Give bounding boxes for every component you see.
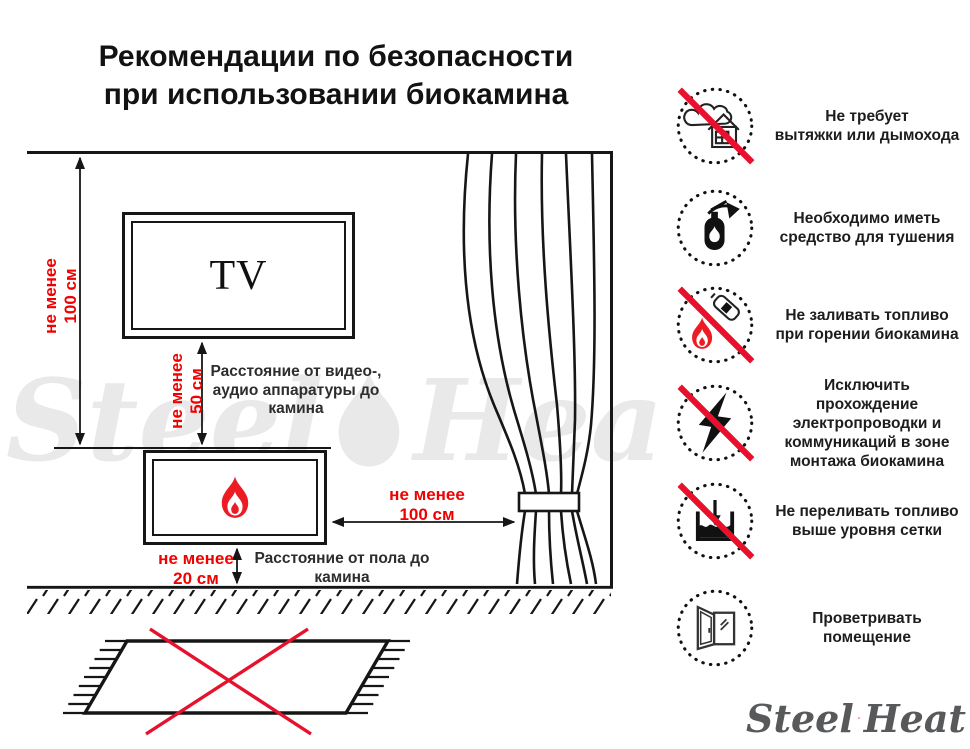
measure-value: 50 см: [187, 336, 207, 446]
caption-line: камина: [210, 400, 382, 419]
no-wiring-icon: [658, 381, 772, 465]
measure-text: не менее: [146, 549, 246, 569]
page-title-line1: Рекомендации по безопасности: [26, 38, 646, 76]
measure-value: 100 см: [352, 505, 502, 525]
floor-hatching: [27, 590, 611, 614]
biofireplace-firebox: [152, 459, 318, 536]
logo-flame-icon: [858, 695, 860, 741]
page-title-line2: при использовании биокамина: [26, 76, 646, 114]
logo-word-steel: Steel: [746, 696, 854, 741]
recommendation-row: Необходимо иметь средство для тушения: [658, 178, 964, 278]
recommendation-text: Не заливать топливо при горении биокамин…: [772, 306, 964, 344]
recommendation-row: Проветривать помещение: [658, 578, 964, 678]
measure-ceiling-to-fireplace: не менее 100 см: [41, 241, 81, 351]
no-overfill-icon: [658, 479, 772, 563]
caption-line: аудио аппаратуры до: [210, 382, 382, 401]
measure-text: не менее: [41, 241, 61, 351]
forbidden-carpet: [63, 629, 410, 734]
recommendation-row: Не требует вытяжки или дымохода: [658, 76, 964, 176]
measure-fireplace-to-curtain: не менее 100 см: [352, 485, 502, 525]
recommendation-row: Не заливать топливо при горении биокамин…: [658, 275, 964, 375]
page-title: Рекомендации по безопасности при использ…: [26, 38, 646, 114]
recommendation-text: Проветривать помещение: [772, 609, 964, 647]
no-chimney-icon: [658, 84, 772, 168]
recommendation-text: Необходимо иметь средство для тушения: [772, 209, 964, 247]
recommendation-text: Не требует вытяжки или дымохода: [772, 107, 964, 145]
flame-icon: [218, 476, 252, 520]
caption-line: Расстояние от видео-,: [210, 363, 382, 382]
measure-text: не менее: [167, 336, 187, 446]
tv-box: TV: [122, 212, 355, 339]
recommendation-row: Исключить прохождение электропроводки и …: [658, 373, 964, 473]
biofireplace-safety-infographic: Steel Heat Рекомендации по безопасности …: [0, 0, 970, 749]
tv-label: TV: [210, 252, 268, 300]
logo-word-heat: Heat: [864, 696, 966, 741]
measure-tv-to-fireplace: не менее 50 см: [167, 336, 207, 446]
recommendation-row: Не переливать топливо выше уровня сетки: [658, 471, 964, 571]
caption-video-audio-distance: Расстояние от видео-, аудио аппаратуры д…: [210, 363, 382, 419]
steelheat-logo: Steel Heat: [746, 690, 966, 746]
caption-line: камина: [252, 569, 432, 588]
biofireplace-box: [143, 450, 327, 545]
ventilate-window-icon: [658, 586, 772, 670]
fire-extinguisher-icon: [658, 186, 772, 270]
measure-value: 100 см: [61, 241, 81, 351]
recommendation-text: Не переливать топливо выше уровня сетки: [772, 502, 964, 540]
tv-screen: TV: [131, 221, 346, 330]
measure-fireplace-to-floor: не менее 20 см: [146, 549, 246, 589]
no-refuel-burning-icon: [658, 283, 772, 367]
measure-value: 20 см: [146, 569, 246, 589]
curtain-tie-band: [519, 493, 579, 511]
measure-text: не менее: [352, 485, 502, 505]
caption-floor-distance: Расстояние от пола до камина: [252, 550, 432, 587]
caption-line: Расстояние от пола до: [252, 550, 432, 569]
recommendation-text: Исключить прохождение электропроводки и …: [772, 376, 964, 471]
